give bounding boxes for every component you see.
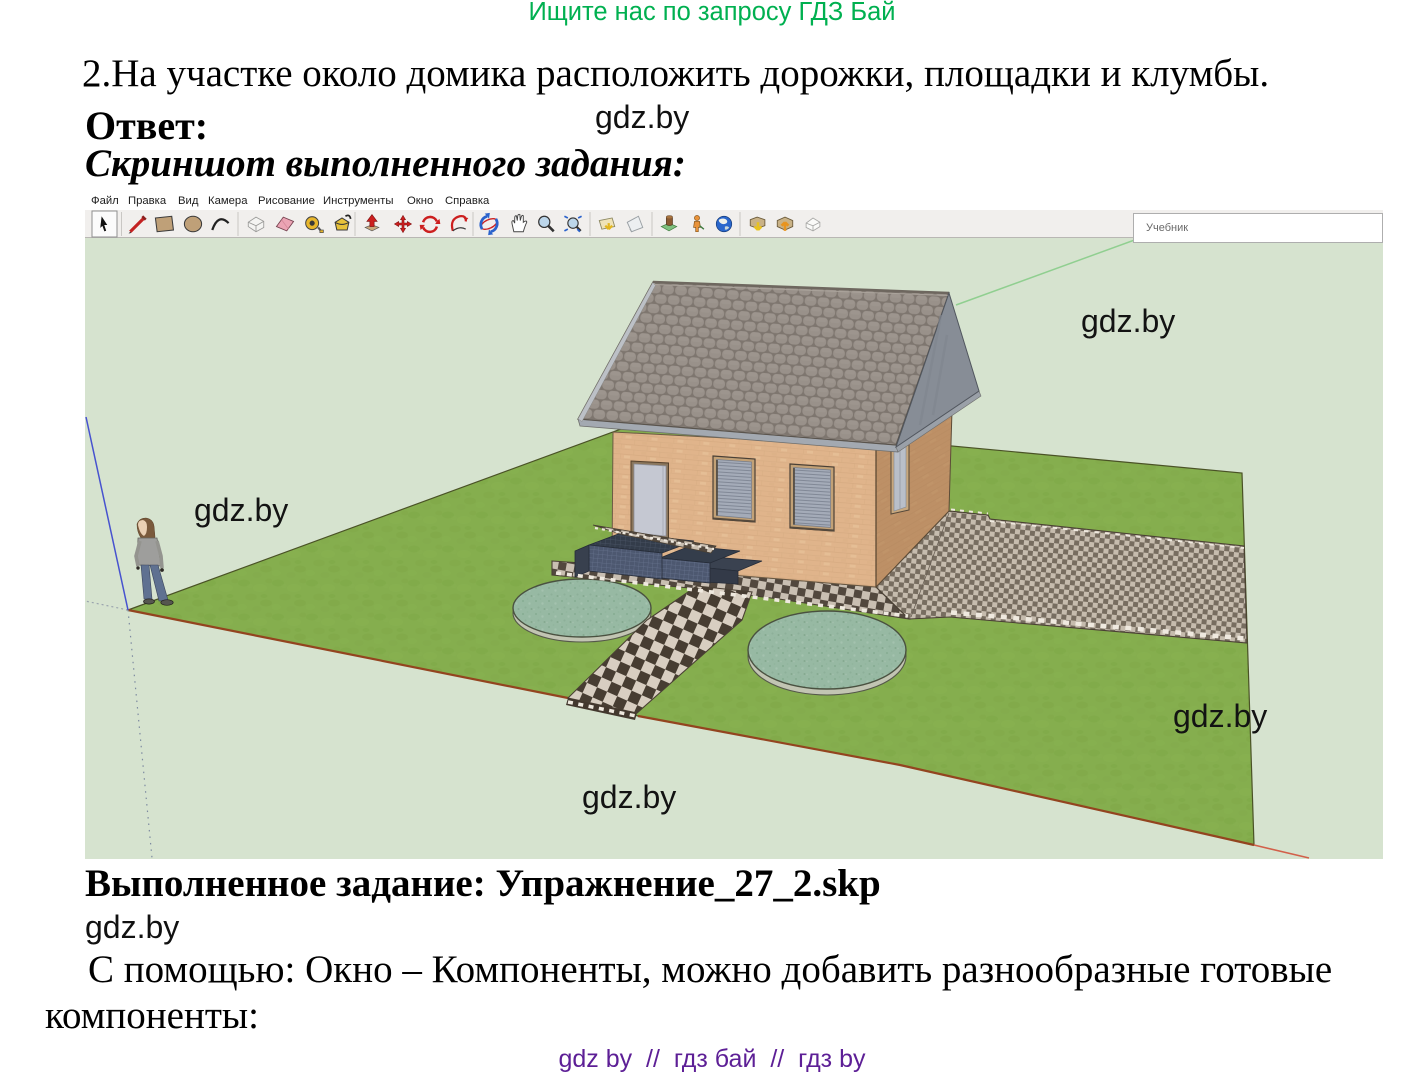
svg-text:gdz.by: gdz.by: [582, 779, 676, 815]
svg-text:ФайлПравкаВидКамераРисованиеИн: ФайлПравкаВидКамераРисованиеИнструментыО…: [91, 195, 490, 207]
svg-text:gdz.by: gdz.by: [1173, 698, 1267, 734]
svg-text:Учебник: Учебник: [1146, 222, 1188, 234]
svg-text:gdz.by: gdz.by: [194, 492, 288, 528]
svg-text:gdz.by: gdz.by: [1081, 303, 1175, 339]
